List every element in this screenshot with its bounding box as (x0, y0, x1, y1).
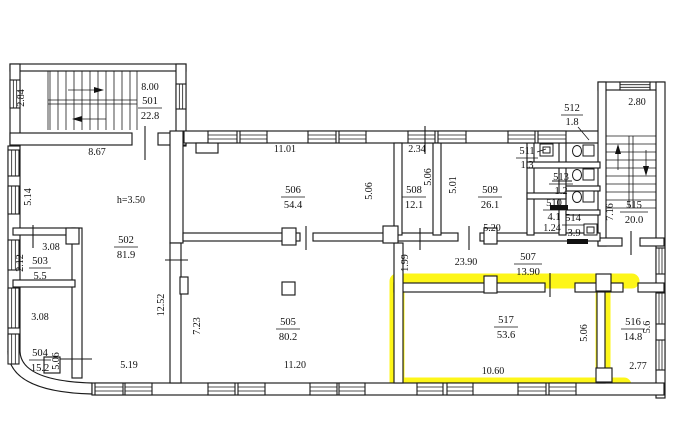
window (310, 383, 337, 395)
room-509-area: 26.1 (481, 200, 499, 211)
floor-plan-canvas: 8.00 501 22.8 2.84 8.67 5.14 h=3.50 502 … (0, 0, 684, 444)
dim-1-24: 1.24 (543, 223, 561, 234)
room-503-label: 3.08 2.12 503 5.5 (15, 242, 60, 282)
room-511-number: 511 (519, 146, 534, 157)
window (8, 334, 19, 364)
dim-8-67: 8.67 (88, 147, 106, 158)
room-507-number: 507 (520, 252, 536, 263)
room-516-label: 516 14.8 5.6 2.77 (621, 317, 653, 372)
room-511-area: 1.3 (520, 160, 533, 171)
window (447, 383, 473, 395)
dim-3-08-b: 3.08 (31, 312, 49, 323)
room-506-label: 11.01 506 54.4 5.06 (274, 144, 375, 211)
room-514-number: 514 (565, 213, 582, 224)
room-515-label: 2.80 7.16 515 20.0 (605, 97, 648, 226)
dim-2-84: 2.84 (16, 89, 27, 107)
room-517-label: 517 53.6 10.60 5.06 (482, 315, 590, 377)
window (240, 131, 267, 143)
window (176, 84, 186, 109)
staircase-515-treads (606, 136, 656, 208)
toilet-icon (573, 191, 595, 203)
room-517-number: 517 (498, 315, 514, 326)
dim-5-06-a: 5.06 (51, 352, 62, 370)
room-513-area: 1.2 (554, 186, 567, 197)
sink-icon (584, 224, 597, 235)
dim-8-00: 8.00 (141, 82, 159, 93)
window (549, 383, 576, 395)
room-506-number: 506 (285, 185, 301, 196)
dim-2-80: 2.80 (628, 97, 646, 108)
room-508-label: 2.34 5.06 508 12.1 (402, 144, 434, 211)
dim-11-01: 11.01 (274, 144, 296, 155)
window (620, 82, 650, 90)
window (508, 131, 535, 143)
up-arrow-icon (615, 144, 621, 154)
window (308, 131, 336, 143)
room-509-number: 509 (482, 185, 498, 196)
room-501-label: 8.00 501 22.8 2.84 (16, 82, 162, 122)
down-arrow-icon (643, 166, 649, 176)
window (8, 186, 19, 214)
room-515-number: 515 (626, 200, 642, 211)
window (95, 383, 123, 395)
room-503-area: 5.5 (33, 271, 46, 282)
window (538, 131, 566, 143)
entrance-vestibule (196, 143, 218, 153)
window (238, 383, 265, 395)
room-510-number: 510 (546, 198, 562, 209)
dim-5-06-d: 5.06 (579, 324, 590, 342)
dim-5-20: 5.20 (483, 223, 501, 234)
window (208, 383, 235, 395)
window (208, 131, 237, 143)
dim-2-12: 2.12 (15, 254, 26, 272)
window (656, 248, 665, 274)
room-505-area: 80.2 (279, 332, 297, 343)
room-508-area: 12.1 (405, 200, 423, 211)
room-501-number: 501 (142, 96, 158, 107)
window (408, 131, 435, 143)
dim-5-01: 5.01 (448, 176, 459, 194)
room-502-area: 81.9 (117, 250, 135, 261)
room-516-area: 14.8 (624, 332, 642, 343)
room-507-area: 13.90 (516, 267, 540, 278)
room-506-area: 54.4 (284, 200, 303, 211)
dim-3-08-a: 3.08 (42, 242, 60, 253)
dim-10-60: 10.60 (482, 366, 505, 377)
room-502-number: 502 (118, 235, 134, 246)
room-516-number: 516 (625, 317, 641, 328)
dim-height-note: h=3.50 (117, 195, 145, 206)
room-515-area: 20.0 (625, 215, 643, 226)
labels: 8.00 501 22.8 2.84 8.67 5.14 h=3.50 502 … (15, 82, 653, 377)
down-arrow-icon (72, 116, 82, 122)
window (339, 383, 365, 395)
dim-5-14: 5.14 (23, 188, 34, 206)
room-503-number: 503 (32, 256, 48, 267)
room-512-area: 1.8 (565, 117, 578, 128)
room-504-label: 3.08 504 15.2 5.06 (29, 312, 62, 374)
dim-5-06-b: 5.06 (364, 182, 375, 200)
dim-12-52: 12.52 (156, 294, 167, 317)
door-panel (567, 239, 588, 244)
window (125, 383, 152, 395)
window (518, 383, 546, 395)
dim-11-20: 11.20 (284, 360, 306, 371)
toilet-icon (573, 145, 595, 157)
window (438, 131, 466, 143)
window (656, 340, 665, 370)
window (8, 150, 19, 176)
dim-2-77: 2.77 (629, 361, 647, 372)
room-504-area: 15.2 (31, 363, 49, 374)
room-505-number: 505 (280, 317, 296, 328)
dim-2-34: 2.34 (408, 144, 426, 155)
room-514-area: 3.9 (567, 228, 580, 239)
window (417, 383, 443, 395)
room-504-number: 504 (32, 348, 49, 359)
room-512-number: 512 (564, 103, 580, 114)
column (282, 282, 295, 295)
staircase-501-treads (48, 71, 137, 130)
toilet-icon (573, 169, 595, 181)
dim-5-6: 5.6 (642, 321, 653, 334)
room-509-label: 5.01 509 26.1 5.20 (448, 176, 502, 234)
window (8, 288, 19, 328)
room-512-label: 512 1.8 (561, 103, 583, 128)
room-517-area: 53.6 (497, 330, 515, 341)
walls (8, 64, 665, 398)
up-arrow-icon (94, 87, 104, 93)
dim-7-16: 7.16 (605, 203, 616, 221)
room-508-number: 508 (406, 185, 422, 196)
room-513-number: 513 (553, 172, 569, 183)
dim-1-99: 1.99 (400, 254, 411, 272)
room-510-area: 4.1 (547, 212, 560, 223)
window (656, 293, 665, 324)
floor-plan-drawing: 8.00 501 22.8 2.84 8.67 5.14 h=3.50 502 … (0, 0, 684, 444)
dim-5-19: 5.19 (120, 360, 138, 371)
room-501-area: 22.8 (141, 111, 159, 122)
dim-7-23: 7.23 (192, 317, 203, 335)
dim-5-06-c: 5.06 (423, 168, 434, 186)
window (339, 131, 366, 143)
dim-23-90: 23.90 (455, 257, 478, 268)
